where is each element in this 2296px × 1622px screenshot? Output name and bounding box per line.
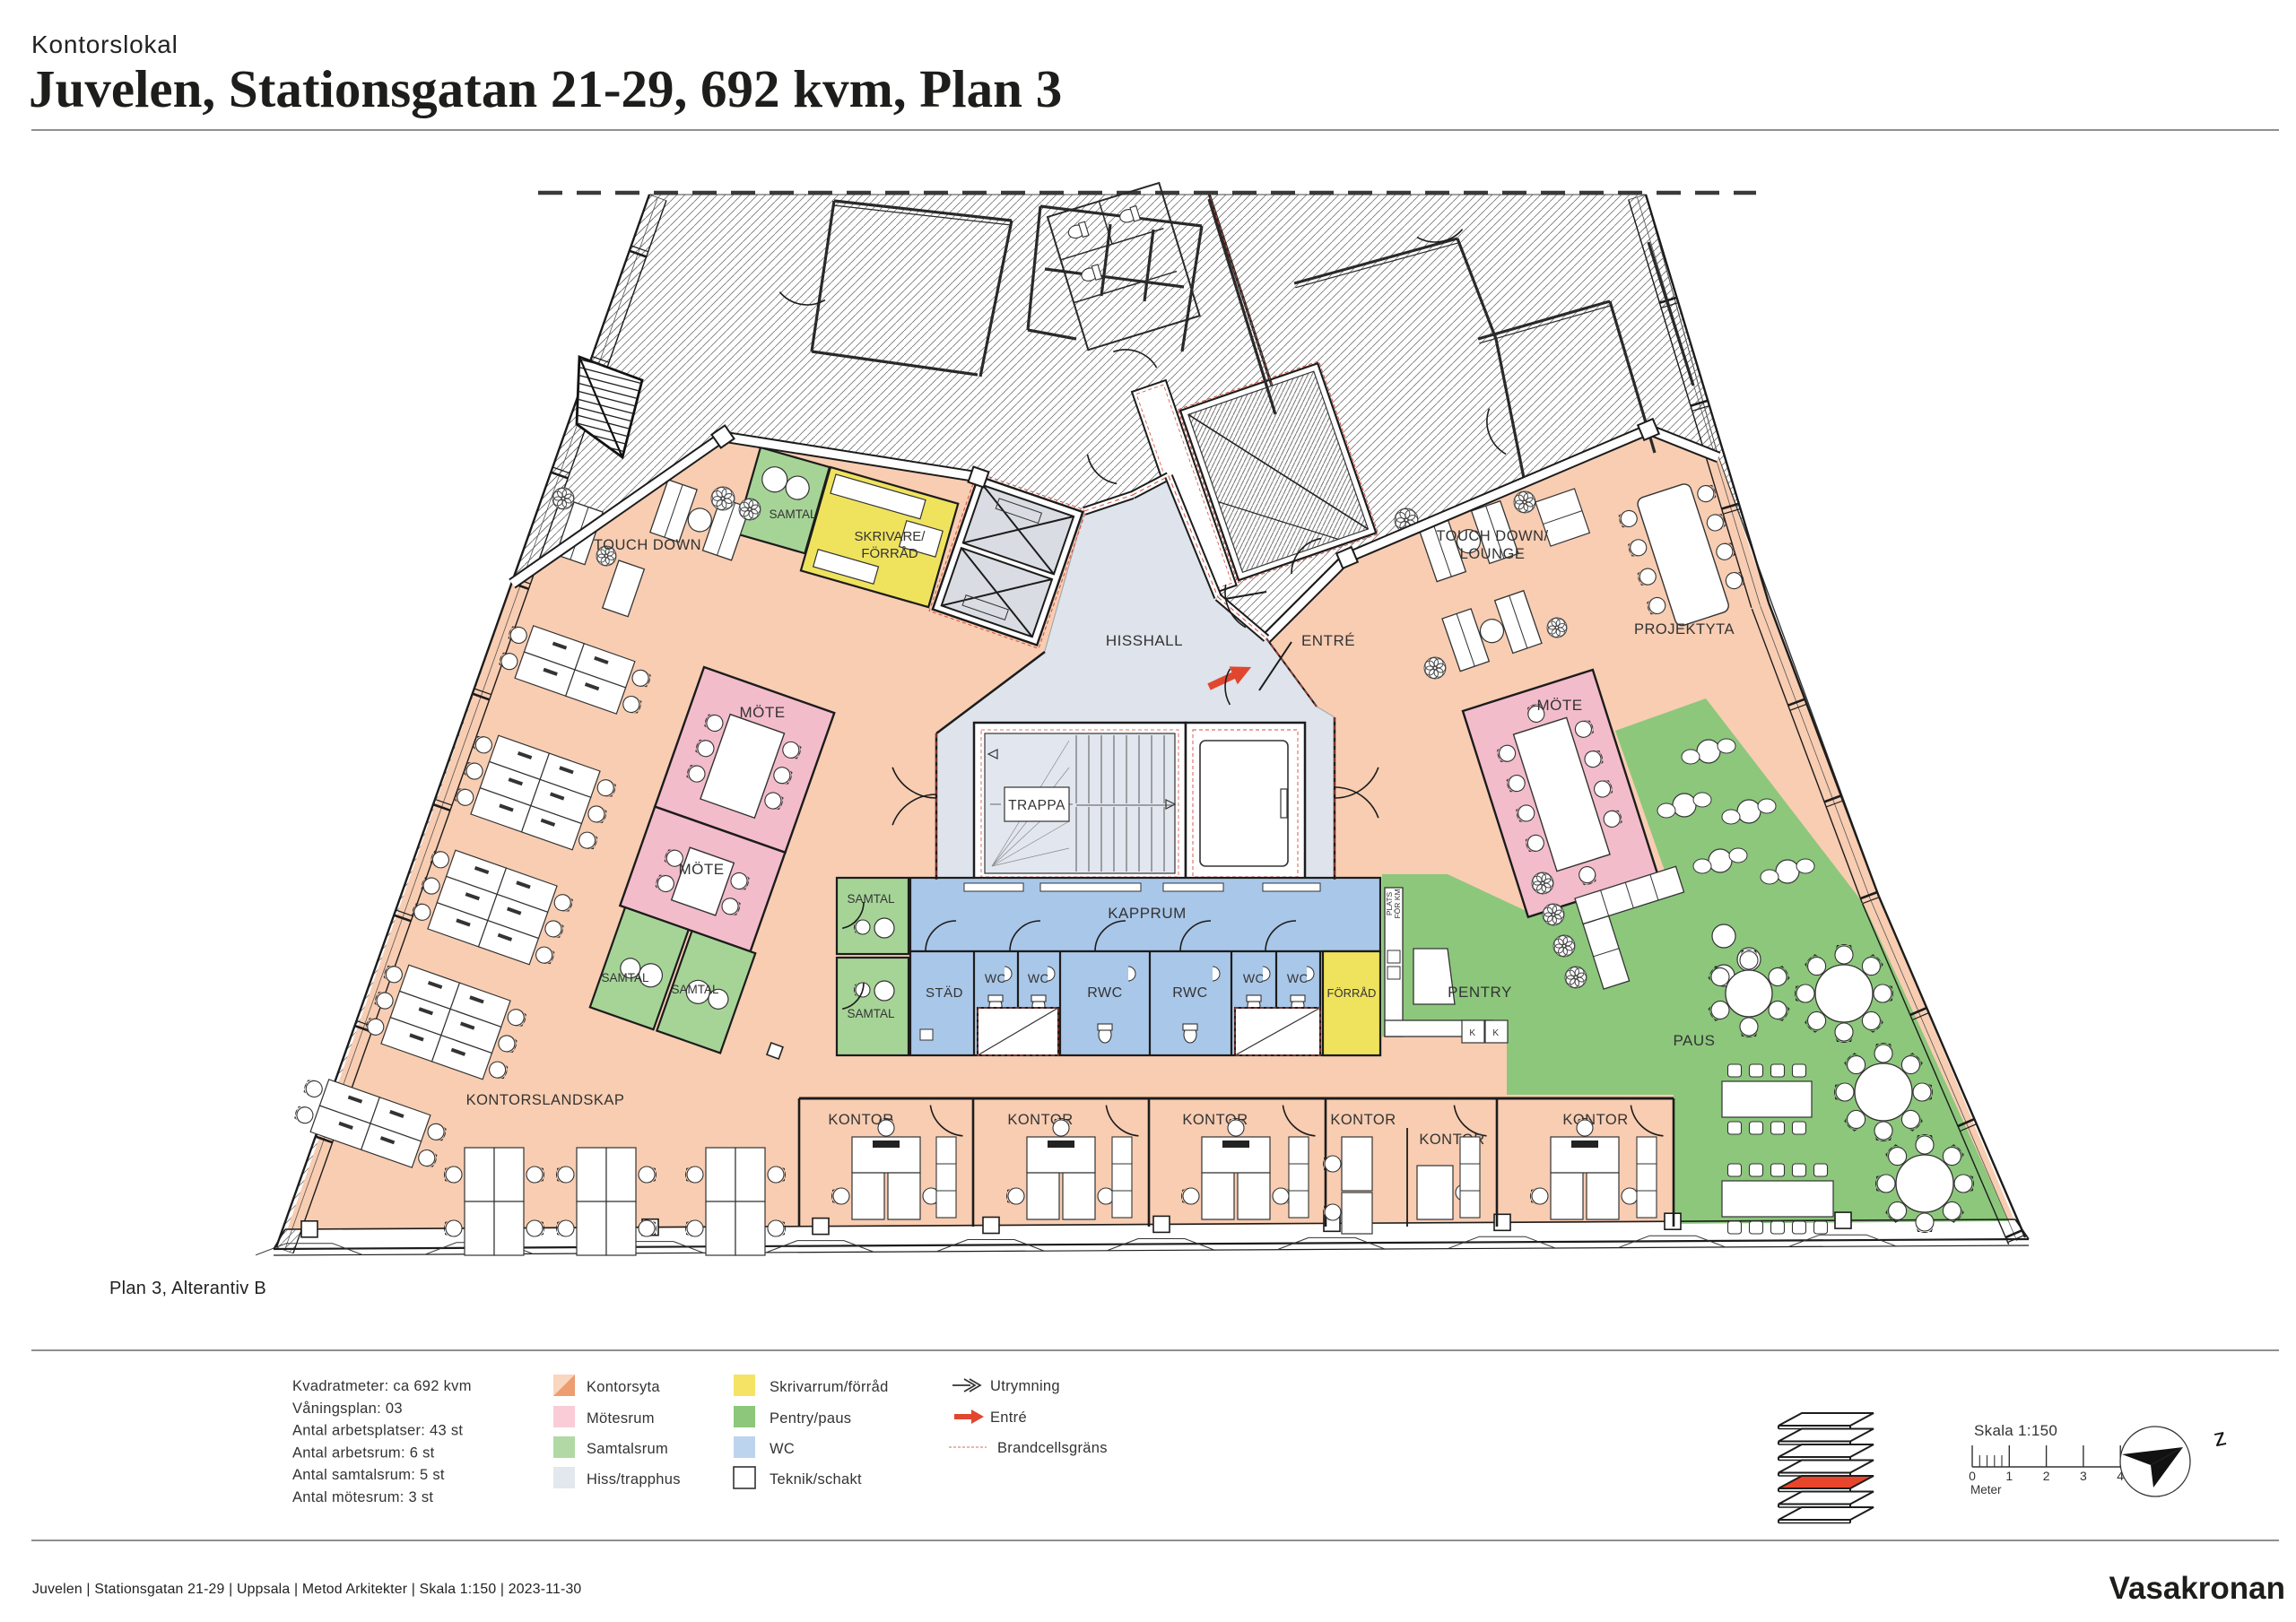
svg-text:TOUCH DOWN/: TOUCH DOWN/ [1436, 528, 1548, 544]
svg-text:Våningsplan: 03: Våningsplan: 03 [292, 1401, 403, 1417]
svg-text:FÖRRÅD: FÖRRÅD [861, 545, 918, 561]
svg-text:PROJEKTYTA: PROJEKTYTA [1634, 621, 1735, 638]
svg-text:SAMTAL: SAMTAL [847, 1007, 895, 1020]
svg-text:K: K [1469, 1028, 1475, 1038]
svg-text:Juvelen, Stationsgatan 21-29,: Juvelen, Stationsgatan 21-29, 692 kvm, P… [29, 59, 1062, 118]
svg-text:Kvadratmeter: ca 692 kvm: Kvadratmeter: ca 692 kvm [292, 1378, 472, 1394]
svg-text:TOUCH DOWN: TOUCH DOWN [594, 537, 701, 553]
svg-text:RWC: RWC [1087, 985, 1122, 1001]
svg-text:WC: WC [1243, 971, 1265, 985]
svg-text:SAMTAL: SAMTAL [671, 983, 719, 996]
svg-text:Skala 1:150: Skala 1:150 [1974, 1422, 2057, 1439]
svg-text:PAUS: PAUS [1673, 1032, 1715, 1049]
svg-text:KONTOR: KONTOR [1562, 1112, 1628, 1128]
svg-text:KAPPRUM: KAPPRUM [1108, 905, 1187, 922]
svg-text:MÖTE: MÖTE [1536, 697, 1582, 714]
svg-text:K: K [1492, 1028, 1499, 1038]
svg-text:1: 1 [2005, 1469, 2013, 1483]
svg-text:Kontorsyta: Kontorsyta [587, 1379, 660, 1395]
svg-text:HISSHALL: HISSHALL [1106, 632, 1183, 649]
svg-text:Pentry/paus: Pentry/paus [770, 1410, 851, 1427]
svg-text:3: 3 [2080, 1469, 2087, 1483]
svg-text:STÄD: STÄD [926, 985, 963, 1001]
svg-text:SKRIVARE/: SKRIVARE/ [855, 529, 926, 544]
svg-text:2: 2 [2043, 1469, 2050, 1483]
svg-text:FÖRRÅD: FÖRRÅD [1327, 986, 1377, 1000]
svg-text:Antal arbetsplatser: 43 st: Antal arbetsplatser: 43 st [292, 1423, 463, 1439]
svg-text:Brandcellsgräns: Brandcellsgräns [997, 1440, 1108, 1456]
svg-text:Samtalsrum: Samtalsrum [587, 1441, 668, 1457]
svg-text:FÖR KM: FÖR KM [1393, 889, 1402, 918]
svg-text:MÖTE: MÖTE [678, 861, 724, 878]
svg-text:Entré: Entré [990, 1409, 1027, 1426]
svg-text:KONTORSLANDSKAP: KONTORSLANDSKAP [466, 1092, 625, 1108]
svg-text:Plan 3, Alterantiv B: Plan 3, Alterantiv B [109, 1279, 266, 1298]
svg-text:Skrivarrum/förråd: Skrivarrum/förråd [770, 1379, 889, 1395]
svg-text:0: 0 [1969, 1469, 1976, 1483]
svg-text:Kontorslokal: Kontorslokal [31, 30, 178, 58]
svg-text:ENTRÉ: ENTRÉ [1301, 632, 1355, 649]
svg-text:WC: WC [1028, 971, 1049, 985]
svg-text:SAMTAL: SAMTAL [769, 507, 817, 521]
svg-text:Antal samtalsrum: 5 st: Antal samtalsrum: 5 st [292, 1467, 445, 1483]
svg-text:Antal arbetsrum: 6 st: Antal arbetsrum: 6 st [292, 1444, 435, 1461]
svg-text:Utrymning: Utrymning [990, 1378, 1060, 1394]
svg-text:WC: WC [985, 971, 1006, 985]
svg-text:MÖTE: MÖTE [739, 704, 785, 721]
svg-text:TRAPPA: TRAPPA [1008, 798, 1065, 813]
svg-text:WC: WC [1287, 971, 1309, 985]
svg-text:LOUNGE: LOUNGE [1460, 546, 1526, 562]
svg-text:PENTRY: PENTRY [1448, 984, 1512, 1001]
svg-text:WC: WC [770, 1441, 795, 1457]
svg-text:SAMTAL: SAMTAL [847, 892, 895, 906]
svg-text:KONTOR: KONTOR [1330, 1112, 1396, 1128]
svg-text:SAMTAL: SAMTAL [601, 971, 649, 984]
svg-text:Hiss/trapphus: Hiss/trapphus [587, 1471, 681, 1488]
svg-text:Meter: Meter [1970, 1483, 2002, 1496]
svg-text:Mötesrum: Mötesrum [587, 1410, 655, 1427]
svg-text:Vasakronan: Vasakronan [2109, 1571, 2286, 1606]
svg-text:Teknik/schakt: Teknik/schakt [770, 1471, 862, 1488]
svg-text:Juvelen | Stationsgatan 21-2: Juvelen | Stationsgatan 21-29 | Uppsala … [32, 1582, 581, 1597]
svg-text:RWC: RWC [1172, 985, 1207, 1001]
svg-text:Antal mötesrum: 3 st: Antal mötesrum: 3 st [292, 1489, 433, 1505]
